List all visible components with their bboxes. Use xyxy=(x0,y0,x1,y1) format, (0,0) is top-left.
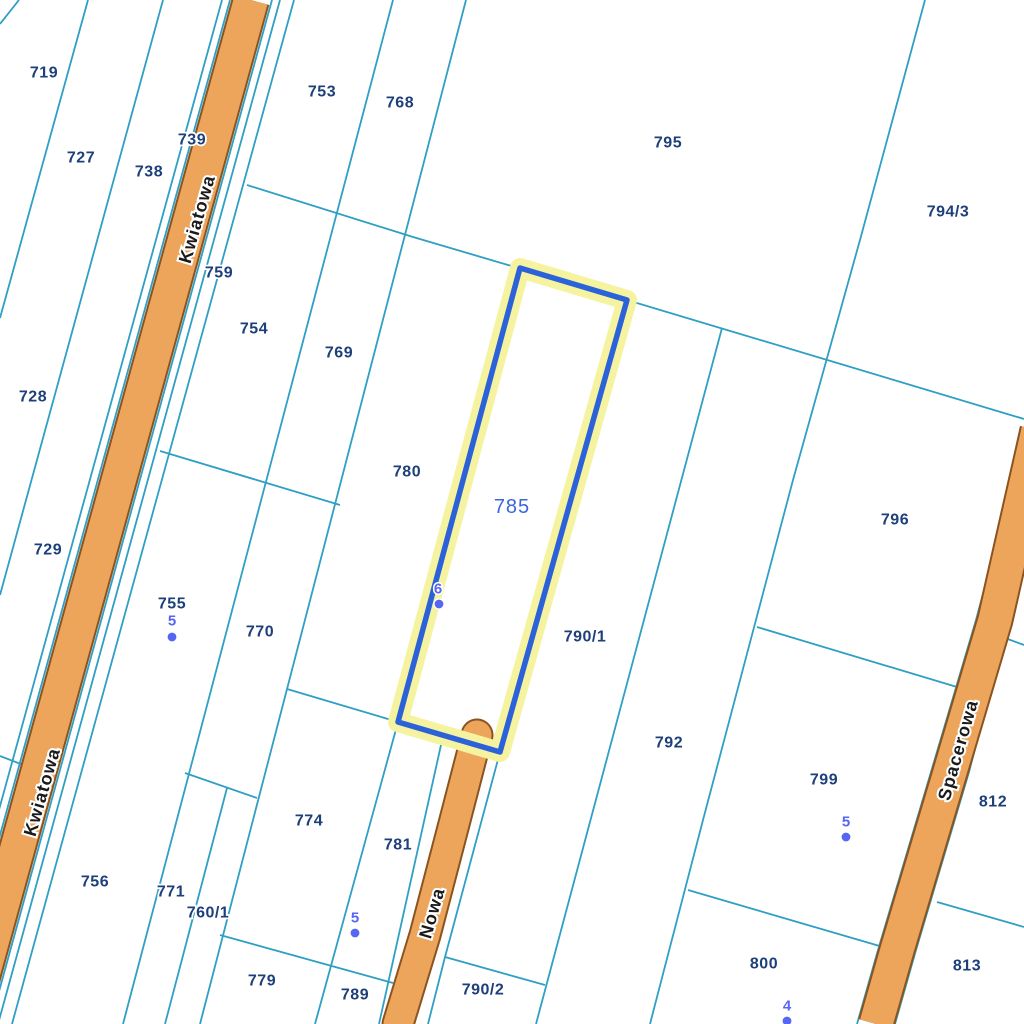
address-point-dot xyxy=(782,1016,792,1024)
address-point-dot xyxy=(350,928,360,938)
address-point: 5 xyxy=(350,910,360,939)
address-point-number: 4 xyxy=(783,998,792,1015)
parcel-label: 769 xyxy=(325,345,353,362)
parcel-label: 756 xyxy=(81,874,109,891)
parcel-label: 790/1 xyxy=(564,629,607,646)
map-viewport[interactable]: 785KwiatowaKwiatowaNowaSpacerowa71972773… xyxy=(0,0,1024,1024)
parcel-label: 813 xyxy=(953,958,981,975)
parcel-label: 792 xyxy=(655,735,683,752)
parcel-label: 739 xyxy=(178,132,206,149)
address-point-dot xyxy=(167,632,177,642)
parcel-label: 781 xyxy=(384,837,412,854)
address-point-number: 6 xyxy=(434,581,442,598)
cadastral-map[interactable]: 785KwiatowaKwiatowaNowaSpacerowa71972773… xyxy=(0,0,1024,1024)
address-point-dot xyxy=(434,599,444,609)
parcel-label: 794/3 xyxy=(927,204,970,221)
parcel-label: 780 xyxy=(393,464,421,481)
parcel-label: 812 xyxy=(979,794,1007,811)
parcel-label: 800 xyxy=(750,956,778,973)
parcel-label: 728 xyxy=(19,389,47,406)
parcel-label: 795 xyxy=(654,135,682,152)
parcel-label: 727 xyxy=(67,150,95,167)
parcel-label: 754 xyxy=(240,321,268,338)
parcel-label: 759 xyxy=(205,265,233,282)
address-point-number: 5 xyxy=(168,613,176,630)
parcel-label: 771 xyxy=(157,884,185,901)
parcel-label: 790/2 xyxy=(462,982,505,999)
address-point: 5 xyxy=(167,613,177,643)
address-point-number: 5 xyxy=(842,814,850,831)
address-point: 4 xyxy=(782,998,792,1024)
selected-parcel-label: 785 xyxy=(494,496,530,518)
parcel-label: 789 xyxy=(341,987,369,1004)
address-point: 5 xyxy=(841,814,851,843)
parcel-label: 729 xyxy=(34,542,62,559)
parcel-label: 779 xyxy=(248,973,276,990)
parcel-label: 753 xyxy=(308,84,336,101)
parcel-label: 796 xyxy=(881,512,909,529)
parcel-label: 770 xyxy=(246,624,274,641)
parcel-label: 768 xyxy=(386,95,414,112)
parcel-label: 799 xyxy=(810,772,838,789)
parcel-label: 760/1 xyxy=(187,905,230,922)
parcel-label: 738 xyxy=(135,164,163,181)
address-point-dot xyxy=(841,832,851,842)
parcel-label: 719 xyxy=(30,65,58,82)
parcel-label: 774 xyxy=(295,813,323,830)
parcel-label: 755 xyxy=(158,596,186,613)
address-point-number: 5 xyxy=(351,910,359,927)
